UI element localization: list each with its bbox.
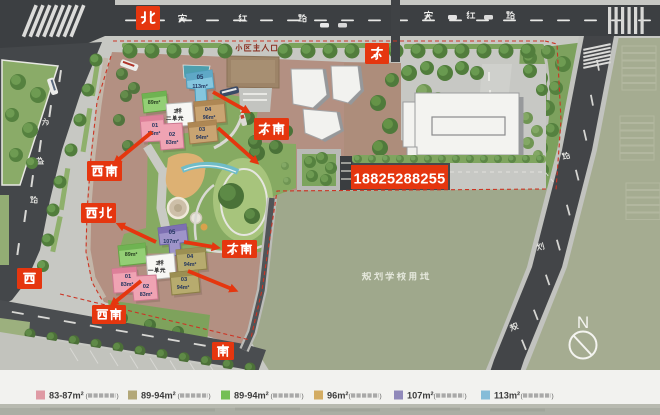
svg-text:83m²: 83m² [140, 292, 153, 298]
svg-text:N: N [577, 313, 589, 332]
svg-text:): ) [552, 393, 554, 400]
svg-text:03: 03 [199, 127, 206, 133]
svg-text:): ) [302, 393, 304, 400]
svg-text:94m²: 94m² [196, 135, 209, 141]
svg-text:113m²: 113m² [494, 391, 520, 401]
svg-text:03: 03 [181, 277, 188, 283]
svg-text:): ) [380, 393, 382, 400]
svg-text:89m²: 89m² [148, 100, 161, 106]
svg-text:89-94m²: 89-94m² [234, 391, 269, 401]
svg-text:83-87m²: 83-87m² [49, 391, 84, 401]
svg-text:18825288255: 18825288255 [353, 172, 445, 188]
svg-text:94m²: 94m² [184, 262, 197, 268]
svg-text:96m²: 96m² [327, 391, 348, 401]
svg-text:1: 1 [173, 109, 176, 115]
svg-text:94m²: 94m² [177, 285, 190, 291]
svg-text:04: 04 [205, 107, 212, 113]
svg-text:89m²: 89m² [125, 252, 138, 258]
svg-text:89-94m²: 89-94m² [141, 391, 176, 401]
svg-text:): ) [465, 393, 467, 400]
svg-text:04: 04 [187, 254, 194, 260]
svg-text:05: 05 [197, 75, 204, 81]
svg-text:02: 02 [143, 284, 149, 290]
svg-text:01: 01 [152, 123, 159, 129]
svg-text:02: 02 [169, 132, 175, 138]
svg-text:01: 01 [125, 274, 132, 280]
svg-text:107m²: 107m² [407, 391, 434, 401]
svg-text:113m²: 113m² [192, 84, 207, 90]
svg-text:1: 1 [155, 261, 158, 267]
svg-text:): ) [117, 393, 119, 400]
svg-text:05: 05 [169, 230, 176, 236]
svg-text:107m²: 107m² [163, 239, 179, 245]
svg-text:96m²: 96m² [203, 115, 216, 121]
svg-text:): ) [209, 393, 211, 400]
svg-text:83m²: 83m² [166, 140, 179, 146]
